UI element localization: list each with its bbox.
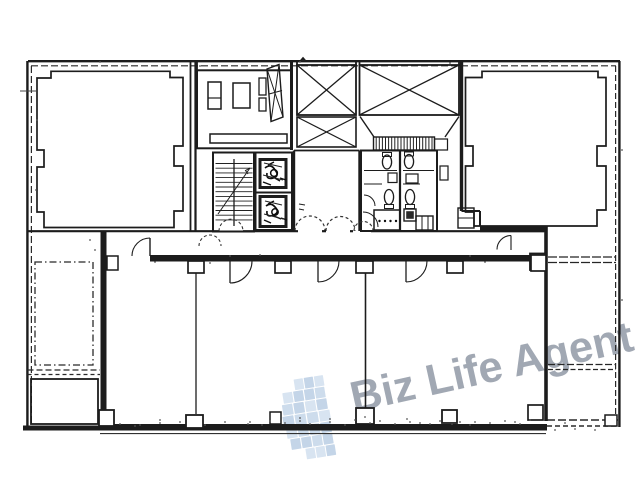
svg-text:Biz Life Agent: Biz Life Agent <box>346 313 638 422</box>
